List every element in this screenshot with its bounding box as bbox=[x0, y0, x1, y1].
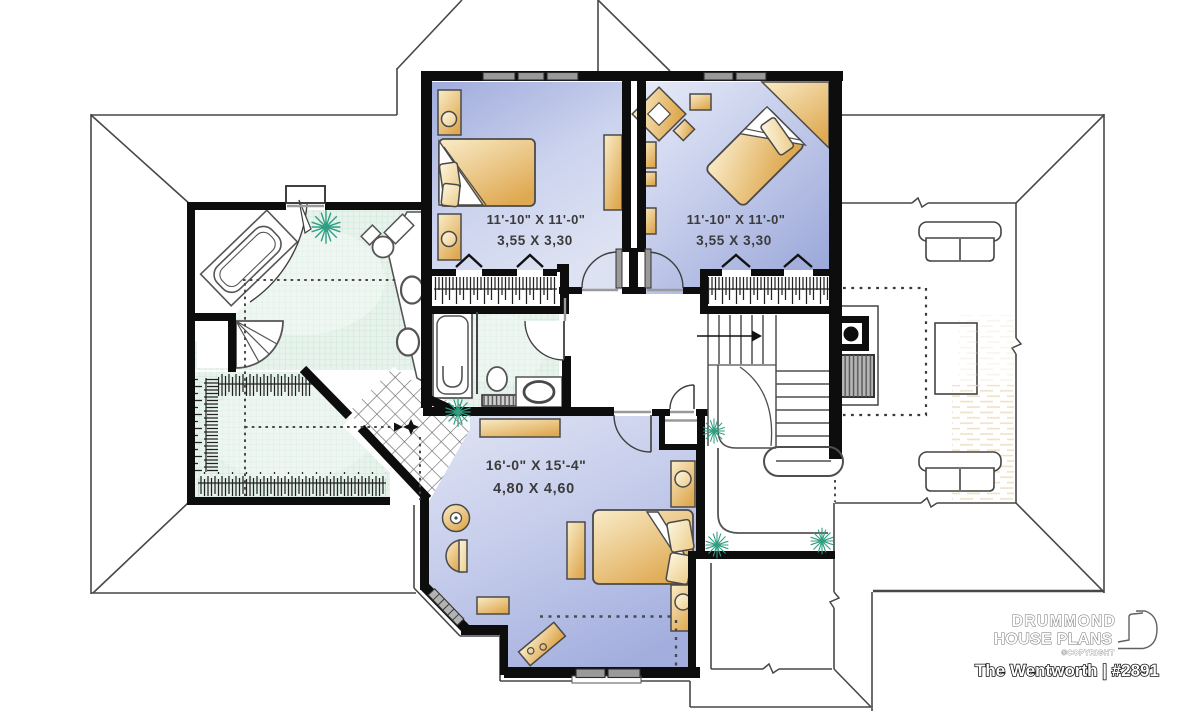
svg-text:The Wentworth | #2891: The Wentworth | #2891 bbox=[975, 661, 1159, 680]
svg-text:DRUMMOND: DRUMMOND bbox=[1012, 613, 1116, 630]
svg-text:16'-0" X 15'-4": 16'-0" X 15'-4" bbox=[486, 457, 587, 473]
svg-text:HOUSE PLANS: HOUSE PLANS bbox=[994, 631, 1113, 648]
svg-text:3,55 X 3,30: 3,55 X 3,30 bbox=[497, 233, 573, 248]
svg-text:3,55 X 3,30: 3,55 X 3,30 bbox=[696, 233, 772, 248]
svg-text:4,80 X 4,60: 4,80 X 4,60 bbox=[493, 481, 575, 497]
svg-text:©COPYRIGHT: ©COPYRIGHT bbox=[1061, 648, 1114, 657]
svg-text:11'-10" X 11'-0": 11'-10" X 11'-0" bbox=[487, 212, 586, 227]
svg-text:11'-10" X 11'-0": 11'-10" X 11'-0" bbox=[687, 212, 786, 227]
